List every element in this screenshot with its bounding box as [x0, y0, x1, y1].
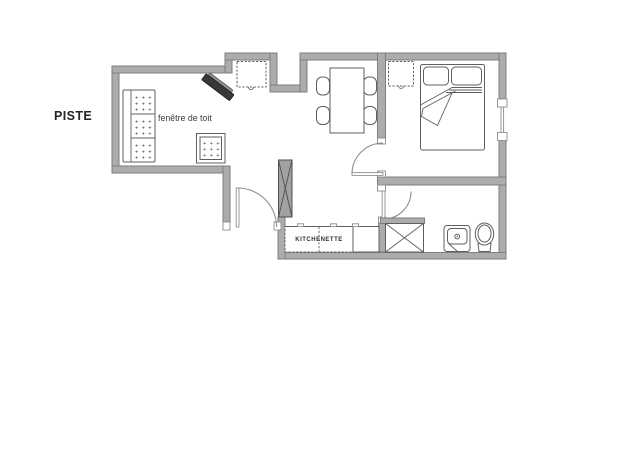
tv	[202, 71, 236, 100]
chair	[317, 107, 330, 125]
window-cap-top	[498, 99, 508, 107]
sofa-texture: + + +	[135, 132, 152, 138]
chair	[364, 77, 377, 95]
jamb-bathdoor-top	[378, 185, 386, 191]
roof-window-living	[237, 62, 266, 90]
counter-handle	[298, 224, 304, 227]
roof-window-frame	[237, 62, 266, 88]
dining-set	[317, 68, 377, 133]
bathroom-door	[382, 191, 411, 219]
pouf-texture: + + +	[203, 153, 220, 159]
wall-right-lower	[499, 140, 506, 259]
window-glass	[501, 106, 504, 134]
sofa-texture: + + +	[135, 156, 152, 162]
kitchenette-label: KITCHENETTE	[285, 237, 353, 243]
dining-table	[330, 68, 364, 133]
wall-living-bottom	[112, 166, 230, 173]
toilet	[475, 223, 493, 252]
area-label-piste: PISTE	[54, 109, 92, 123]
wall-top-main	[300, 53, 506, 60]
roof-window-label: fenêtre de toit	[158, 113, 212, 123]
washbasin	[444, 226, 470, 252]
shower	[381, 218, 425, 252]
roof-window-frame	[389, 62, 414, 87]
floorplan-canvas: + + + + + + + + + + + + + + + + + + + + …	[0, 0, 640, 452]
sofa: + + + + + + + + + + + + + + + + + + + + …	[123, 90, 155, 162]
wall-living-left	[112, 66, 119, 173]
bedroom-door	[352, 143, 383, 175]
wall-entry-left	[223, 166, 230, 222]
wall-partition-bedroom	[378, 53, 386, 138]
jamb-entrance-right	[274, 222, 281, 230]
pillow	[452, 67, 482, 85]
shower-top-wall	[381, 218, 425, 224]
bathroom-door-leaf	[382, 191, 385, 219]
window-cap-bottom	[498, 133, 508, 141]
entrance-door-swing	[238, 188, 277, 227]
entrance-door	[236, 188, 276, 227]
wall-living-top	[112, 66, 232, 73]
wall-alcove-top	[225, 53, 277, 60]
wall-right-upper	[499, 53, 506, 100]
wall-bottom	[278, 253, 506, 260]
wall-bath-stub	[379, 223, 386, 252]
double-bed	[421, 65, 485, 151]
roof-window-bedroom	[389, 62, 414, 89]
entrance-door-leaf	[236, 188, 239, 227]
chair	[364, 107, 377, 125]
pillow	[424, 67, 449, 85]
jamb-entrance-left	[223, 222, 230, 230]
bedroom-side-window	[498, 99, 508, 141]
toilet-bowl-inner	[478, 225, 491, 242]
counter-handle	[353, 224, 359, 227]
sofa-texture: + + +	[135, 108, 152, 114]
bathroom-door-swing	[384, 192, 412, 220]
bedroom-door-leaf	[352, 173, 383, 176]
floorplan-drawing: + + + + + + + + + + + + + + + + + + + + …	[0, 0, 640, 452]
bedroom-door-swing	[352, 143, 383, 174]
basin-drain-dot	[457, 236, 458, 237]
pouf: + + + + + + + + +	[197, 134, 226, 164]
counter-solid	[353, 227, 379, 253]
chair	[317, 77, 330, 95]
closet	[279, 160, 293, 217]
counter-handle	[331, 224, 337, 227]
wall-bedroom-bottom	[378, 177, 507, 185]
